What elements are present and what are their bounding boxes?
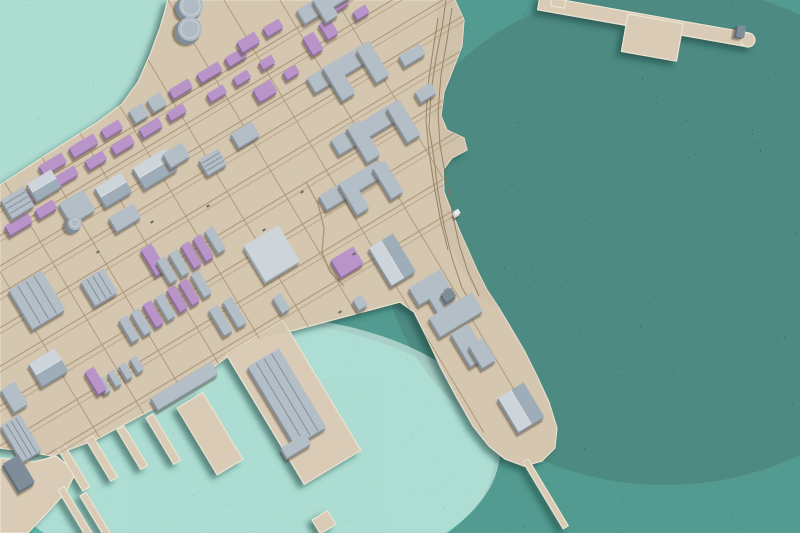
architectural-model-photo: [0, 0, 800, 533]
model-scene: [0, 0, 800, 533]
